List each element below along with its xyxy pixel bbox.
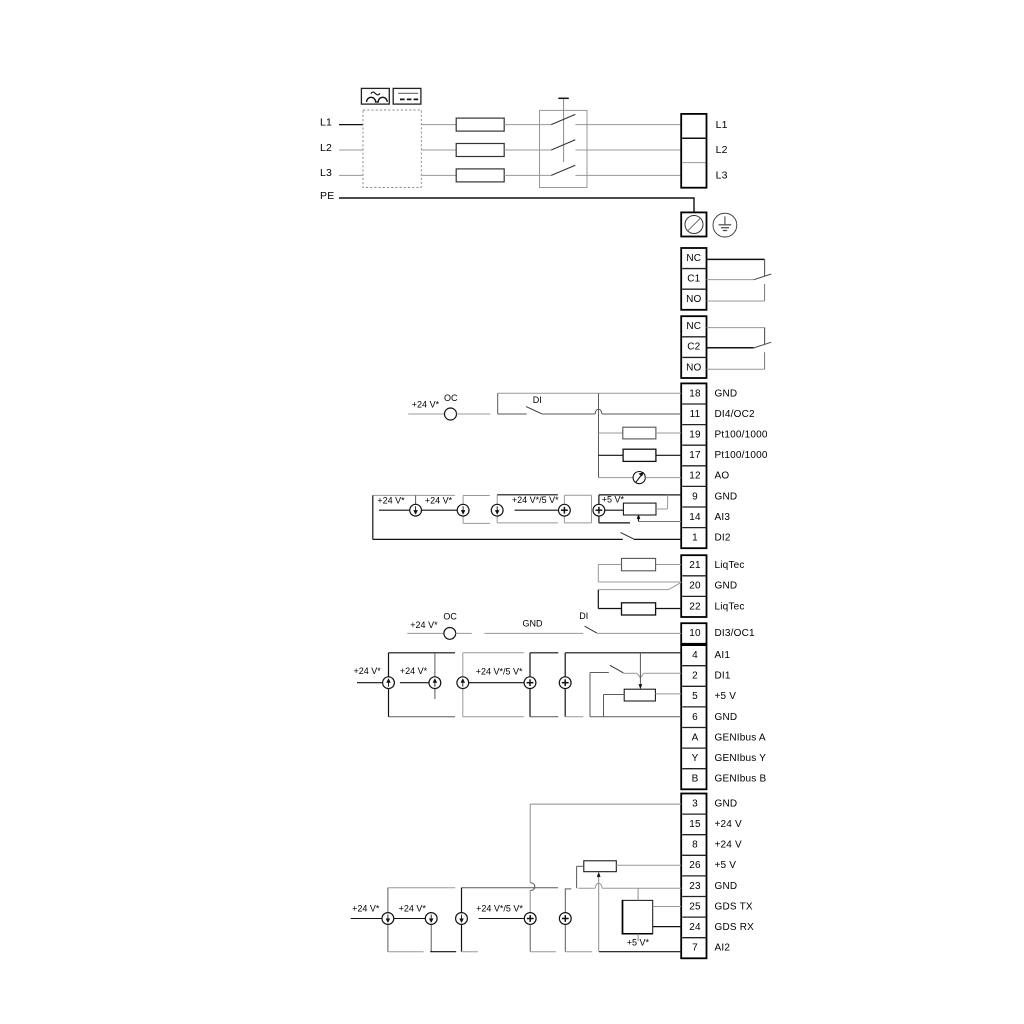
svg-text:OC: OC [444, 393, 458, 403]
svg-text:NO: NO [686, 294, 701, 305]
svg-text:+24 V: +24 V [715, 819, 743, 830]
svg-text:25: 25 [689, 901, 701, 912]
svg-text:DI4/OC2: DI4/OC2 [715, 409, 756, 420]
svg-text:AI2: AI2 [715, 943, 731, 954]
svg-text:L3: L3 [320, 167, 332, 179]
svg-text:AI3: AI3 [715, 512, 731, 523]
svg-text:11: 11 [690, 409, 701, 420]
svg-text:+24 V: +24 V [715, 840, 743, 851]
svg-text:GDS TX: GDS TX [715, 901, 753, 912]
svg-text:2: 2 [692, 671, 698, 682]
svg-text:GENIbus A: GENIbus A [715, 732, 766, 743]
svg-text:NC: NC [686, 321, 701, 332]
svg-text:C2: C2 [687, 342, 700, 353]
svg-text:PE: PE [320, 190, 334, 202]
svg-text:23: 23 [689, 881, 701, 892]
svg-text:GND: GND [715, 388, 738, 399]
svg-text:DI2: DI2 [715, 533, 731, 544]
svg-text:+24 V*: +24 V* [400, 666, 428, 676]
svg-text:+5 V*: +5 V* [627, 938, 650, 948]
svg-text:GND: GND [715, 581, 738, 592]
svg-text:NO: NO [686, 362, 701, 373]
svg-text:DI1: DI1 [715, 671, 731, 682]
svg-text:+5 V: +5 V [715, 860, 737, 871]
svg-text:4: 4 [692, 650, 698, 661]
svg-text:L3: L3 [716, 170, 728, 182]
svg-text:DI3/OC1: DI3/OC1 [715, 628, 756, 639]
svg-text:+24 V*: +24 V* [377, 496, 405, 506]
svg-text:L1: L1 [716, 119, 728, 131]
svg-text:DI: DI [579, 611, 588, 621]
svg-text:NC: NC [686, 253, 701, 264]
svg-text:GND: GND [523, 619, 544, 629]
svg-text:OC: OC [443, 611, 457, 621]
svg-text:+5 V: +5 V [715, 691, 737, 702]
svg-text:A: A [692, 732, 699, 743]
svg-text:22: 22 [689, 601, 701, 612]
svg-text:AO: AO [715, 471, 730, 482]
svg-text:9: 9 [692, 491, 698, 502]
svg-text:GND: GND [715, 798, 738, 809]
svg-text:+24 V*/5 V*: +24 V*/5 V* [476, 667, 523, 677]
svg-text:5: 5 [692, 691, 698, 702]
svg-text:26: 26 [689, 860, 701, 871]
svg-text:24: 24 [689, 922, 701, 933]
svg-text:B: B [692, 774, 699, 785]
svg-text:L1: L1 [320, 116, 332, 128]
svg-text:Pt100/1000: Pt100/1000 [715, 430, 768, 441]
svg-text:+24 V*: +24 V* [354, 666, 382, 676]
svg-text:10: 10 [689, 628, 701, 639]
svg-text:+24 V*/5 V*: +24 V*/5 V* [476, 903, 523, 913]
svg-text:Y: Y [692, 753, 699, 764]
svg-text:+5 V*: +5 V* [602, 495, 625, 505]
svg-text:6: 6 [692, 712, 698, 723]
svg-text:L2: L2 [716, 144, 728, 156]
svg-text:+24 V*/5 V*: +24 V*/5 V* [512, 495, 559, 505]
svg-text:15: 15 [689, 819, 701, 830]
svg-text:21: 21 [689, 560, 701, 571]
svg-text:+24 V*: +24 V* [399, 903, 427, 913]
svg-text:18: 18 [689, 388, 701, 399]
svg-text:GND: GND [715, 712, 738, 723]
svg-text:8: 8 [692, 840, 698, 851]
svg-text:LiqTec: LiqTec [715, 560, 745, 571]
svg-text:3: 3 [692, 798, 698, 809]
svg-text:C1: C1 [687, 274, 700, 285]
svg-text:L2: L2 [320, 142, 332, 154]
svg-text:AI1: AI1 [715, 650, 731, 661]
svg-text:LiqTec: LiqTec [715, 601, 745, 612]
svg-text:7: 7 [692, 943, 698, 954]
svg-text:Pt100/1000: Pt100/1000 [715, 450, 768, 461]
svg-text:1: 1 [692, 533, 698, 544]
svg-text:DI: DI [533, 395, 542, 405]
svg-text:GND: GND [715, 491, 738, 502]
svg-text:+24 V*: +24 V* [425, 496, 453, 506]
svg-text:+24 V*: +24 V* [352, 903, 380, 913]
svg-text:+24 V*: +24 V* [410, 620, 438, 630]
svg-text:17: 17 [689, 450, 701, 461]
svg-text:19: 19 [689, 430, 701, 441]
svg-text:GDS RX: GDS RX [715, 922, 755, 933]
svg-text:GENIbus B: GENIbus B [715, 774, 767, 785]
svg-text:+24 V*: +24 V* [412, 400, 440, 410]
svg-text:12: 12 [689, 471, 701, 482]
svg-text:20: 20 [689, 581, 701, 592]
svg-text:GENIbus Y: GENIbus Y [715, 753, 767, 764]
svg-text:14: 14 [689, 512, 701, 523]
svg-text:GND: GND [715, 881, 738, 892]
